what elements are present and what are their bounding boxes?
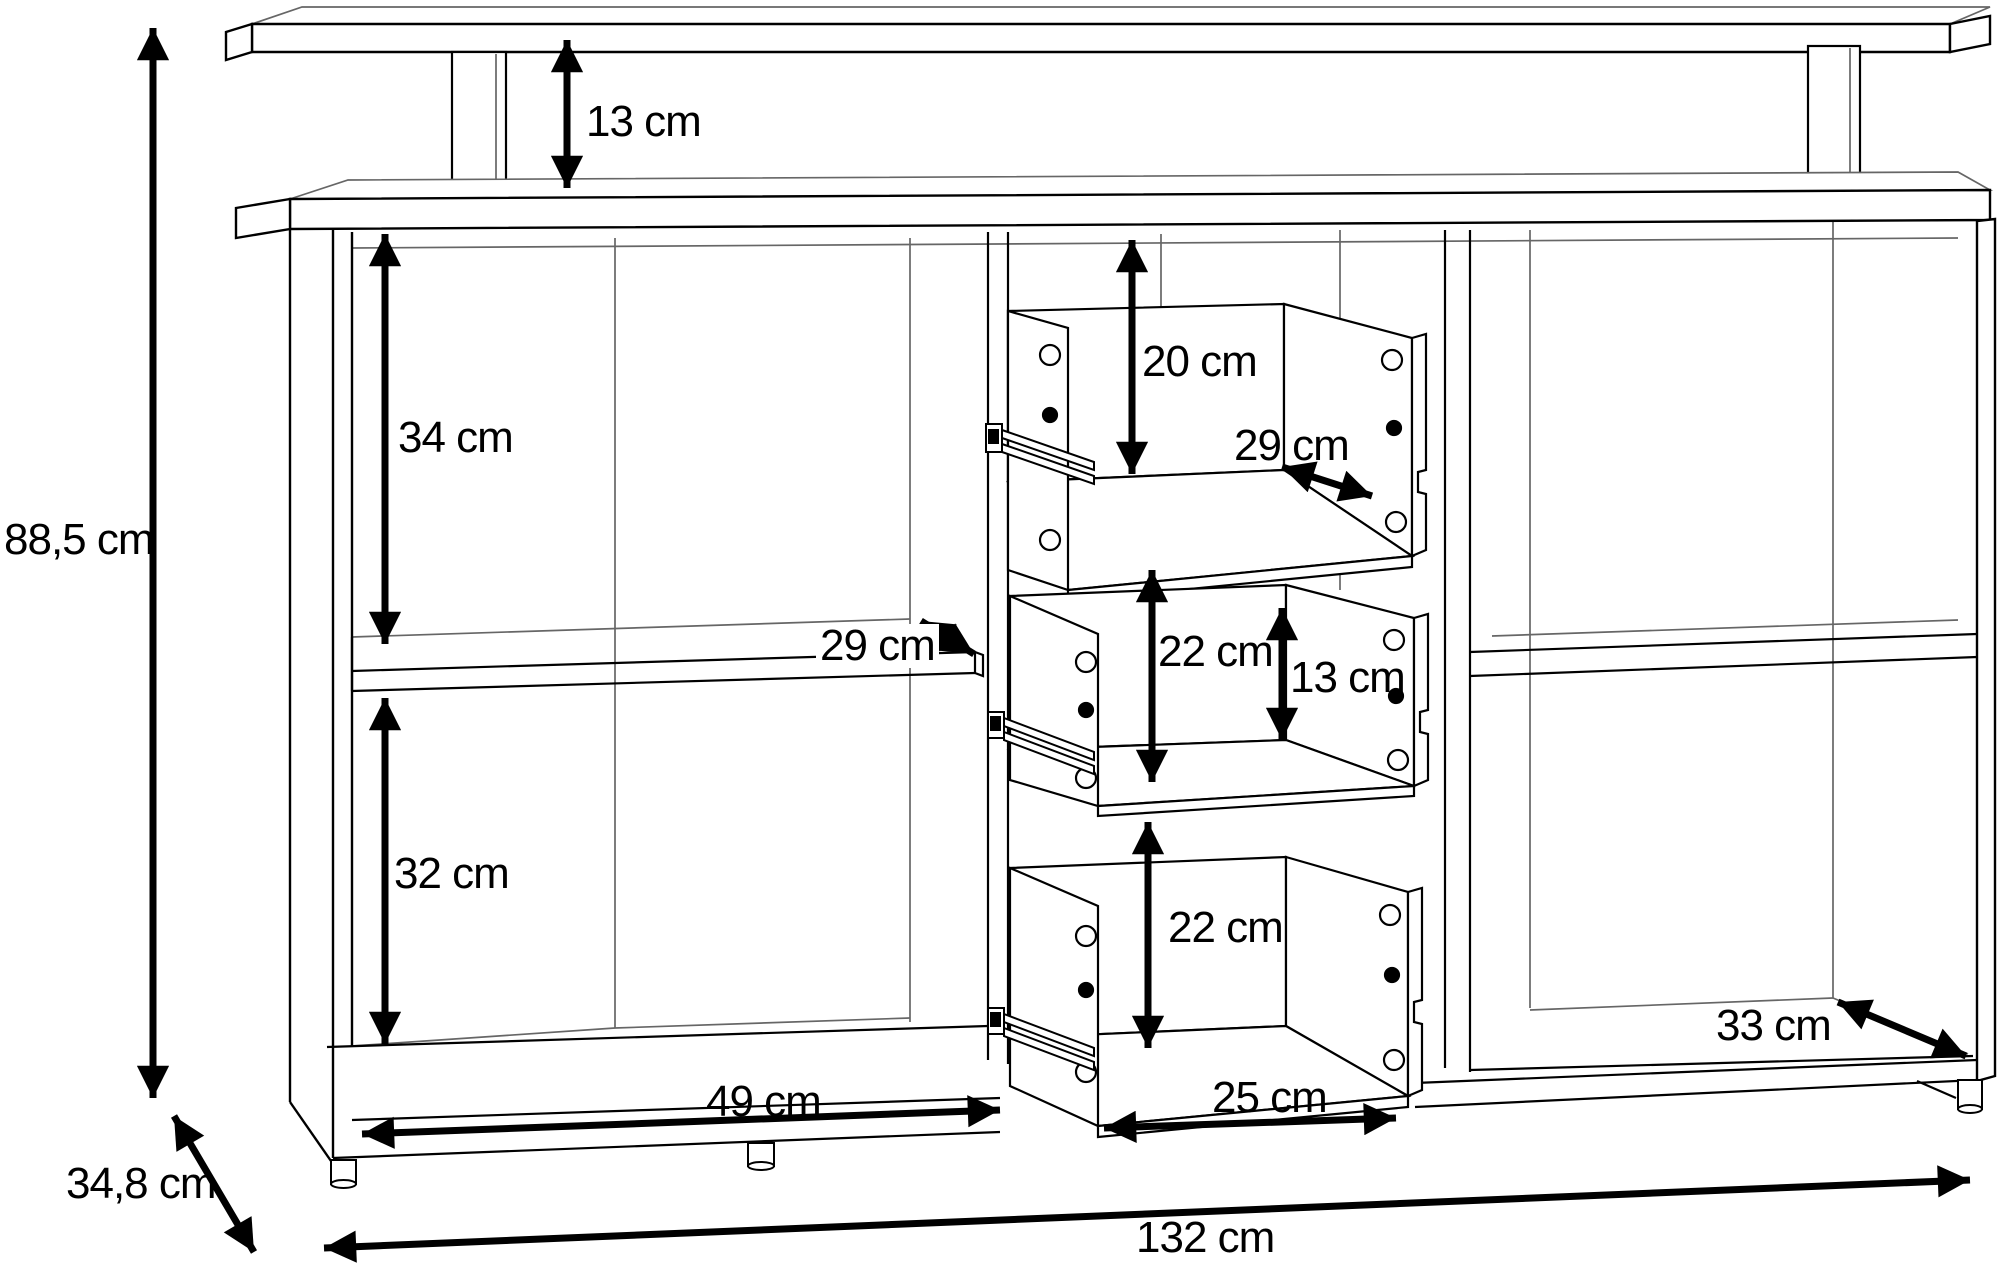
right-divider (1445, 230, 1470, 1072)
right-compartment-shelf (1470, 620, 1977, 676)
arrow-left-section-width (362, 1110, 1000, 1134)
dim-label-overall-height: 88,5 cm (4, 518, 154, 562)
dim-label-hutch-clearance: 13 cm (586, 100, 701, 144)
cabinet-line-art (0, 0, 2000, 1264)
dim-label-lower-left-height: 32 cm (394, 852, 509, 896)
arrow-right-section-depth (1838, 1002, 1966, 1056)
dim-label-left-shelf-depth: 29 cm (816, 624, 939, 668)
dim-label-middle-drawer-back-height: 13 cm (1290, 656, 1405, 700)
dim-label-upper-left-height: 34 cm (398, 416, 513, 460)
center-divider (988, 232, 1008, 1064)
dim-label-left-section-width: 49 cm (706, 1080, 821, 1124)
dim-label-overall-depth: 34,8 cm (66, 1162, 216, 1206)
dim-label-middle-drawer-height: 22 cm (1158, 630, 1273, 674)
support-pillar-left (452, 52, 506, 197)
left-side-panel (290, 229, 352, 1161)
dim-label-overall-width: 132 cm (1136, 1216, 1274, 1260)
dim-label-top-drawer-depth: 29 cm (1234, 424, 1349, 468)
dim-label-top-drawer-height: 20 cm (1142, 340, 1257, 384)
foot-left (331, 1160, 356, 1188)
dim-label-drawer-width: 25 cm (1212, 1076, 1327, 1120)
support-pillar-right (1808, 46, 1860, 192)
right-side-panel (1977, 219, 1995, 1081)
foot-right (1958, 1080, 1982, 1113)
furniture-dimension-diagram: { "unit": "cm", "colors": { "background"… (0, 0, 2000, 1264)
main-top-board (236, 172, 1990, 238)
foot-middle (748, 1143, 774, 1170)
dim-label-right-section-depth: 33 cm (1716, 1004, 1831, 1048)
dim-label-bottom-drawer-height: 22 cm (1168, 906, 1283, 950)
